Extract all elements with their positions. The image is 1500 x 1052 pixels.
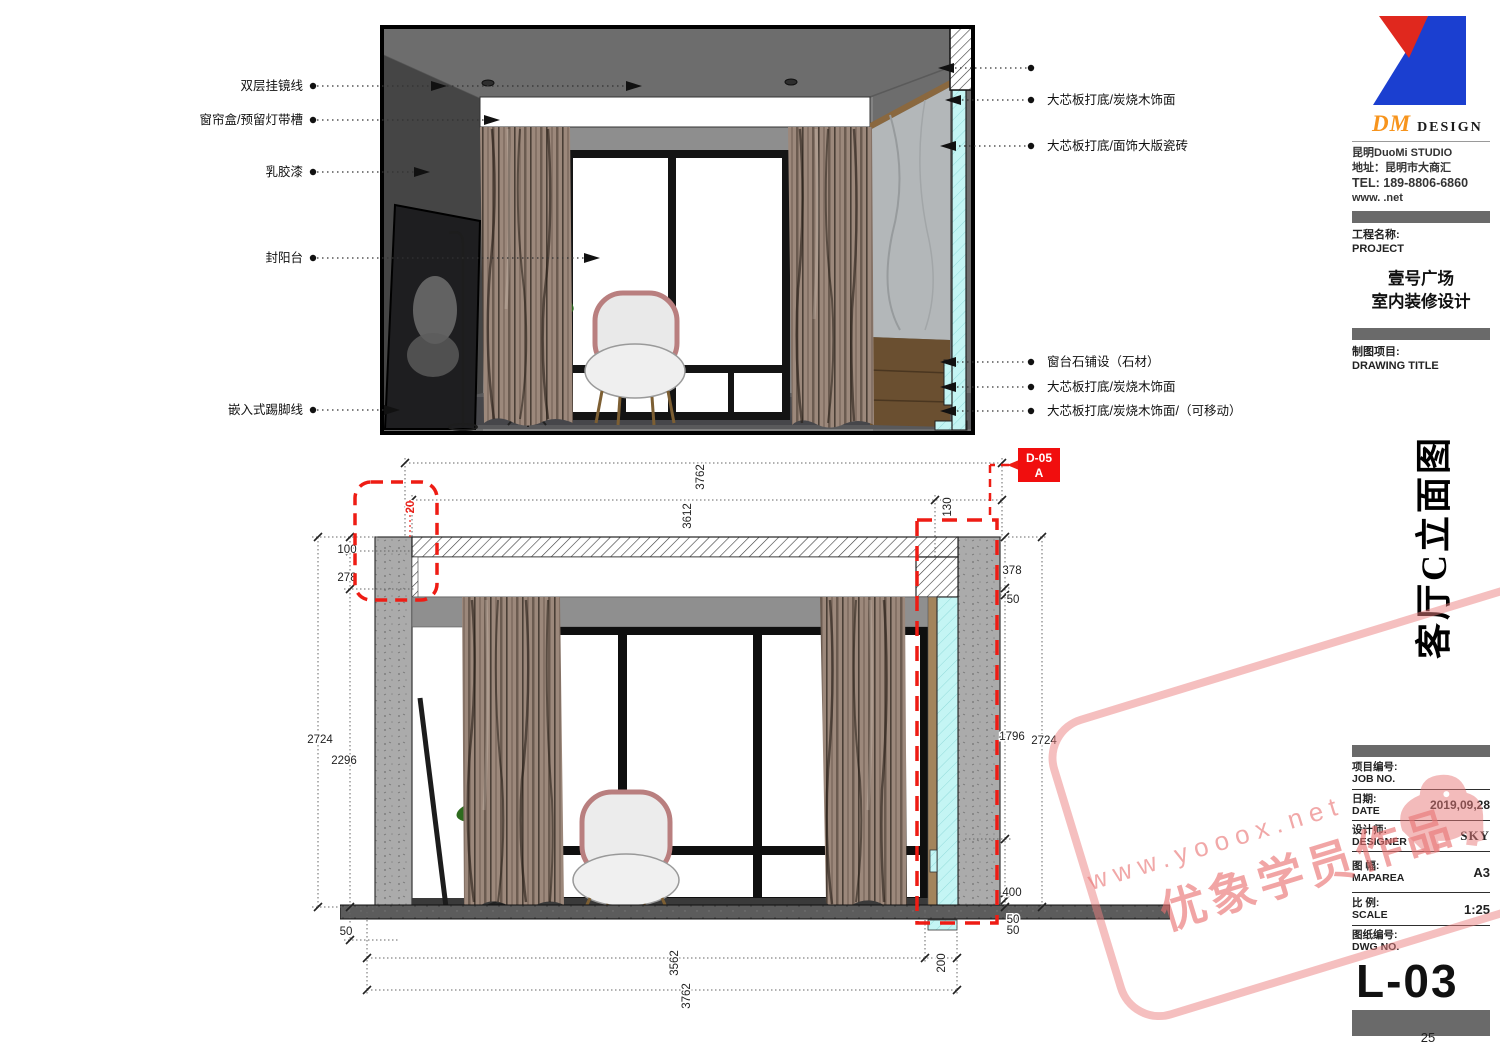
dim-right-50c: 50 — [1007, 925, 1020, 937]
dim-bottom-200: 200 — [936, 953, 948, 972]
studio-name: 昆明DuoMi STUDIO — [1352, 146, 1490, 161]
dim-top-20: 20 — [405, 501, 417, 514]
leader-dots-left — [310, 83, 316, 413]
dim-left-50: 50 — [340, 926, 353, 938]
dimension-lines — [312, 458, 1048, 995]
drawing-title-section-label: 制图项目: DRAWING TITLE — [1352, 345, 1490, 373]
callout-tallrect — [917, 520, 997, 923]
detail-callout-zone: A — [1035, 466, 1044, 480]
project-name: 壹号广场 室内装修设计 — [1352, 268, 1490, 314]
leader-arrows-right — [938, 63, 961, 416]
leader-lines-left — [317, 86, 640, 410]
dim-right-50a: 50 — [1007, 594, 1020, 606]
company-logo-icon — [1371, 14, 1469, 109]
dim-bottom-3762: 3762 — [681, 983, 693, 1009]
dim-top-overall: 3762 — [695, 464, 707, 490]
detail-callouts: D-05 A — [355, 448, 1060, 923]
studio-tel: TEL: 189-8806-6860 — [1352, 176, 1490, 191]
detail-callout-code: D-05 — [1026, 451, 1052, 465]
dim-top-inner: 3612 — [682, 503, 694, 529]
callout-arrow-icon — [1007, 460, 1019, 470]
page-number: 25 — [1398, 1030, 1458, 1045]
leader-arrows-left — [384, 81, 642, 415]
dim-left-2296: 2296 — [331, 755, 357, 767]
project-name-line1: 壹号广场 — [1352, 268, 1490, 291]
drawing-number: L-03 — [1352, 956, 1490, 1006]
dim-right-400: 400 — [1002, 887, 1021, 899]
project-name-line2: 室内装修设计 — [1352, 291, 1490, 314]
dimension-ticks — [314, 459, 1046, 994]
dim-left-2724: 2724 — [307, 734, 333, 746]
project-section-label: 工程名称: PROJECT — [1352, 228, 1490, 256]
studio-address: 地址：昆明市大商汇 — [1352, 161, 1490, 176]
dimension-texts: 3762 3612 130 20 100 278 2724 2296 50 37… — [307, 464, 1057, 1009]
logo-design-text: DESIGN — [1417, 120, 1483, 136]
company-info: 昆明DuoMi STUDIO 地址：昆明市大商汇 TEL: 189-8806-6… — [1352, 146, 1490, 206]
logo-dm-text: DM — [1372, 111, 1411, 137]
dim-top-130: 130 — [942, 497, 954, 516]
dim-right-1796: 1796 — [999, 731, 1025, 743]
dim-right-378: 378 — [1002, 565, 1021, 577]
dim-bottom-3562: 3562 — [669, 950, 681, 976]
project-label-en: PROJECT — [1352, 242, 1490, 256]
studio-web: www. .net — [1352, 191, 1490, 206]
drawing-label-cn: 制图项目: — [1352, 345, 1490, 359]
leader-dots-right — [1028, 65, 1034, 414]
logo-wordmark: DM DESIGN — [1352, 111, 1490, 137]
project-label-cn: 工程名称: — [1352, 228, 1490, 242]
drawing-label-en: DRAWING TITLE — [1352, 359, 1490, 373]
